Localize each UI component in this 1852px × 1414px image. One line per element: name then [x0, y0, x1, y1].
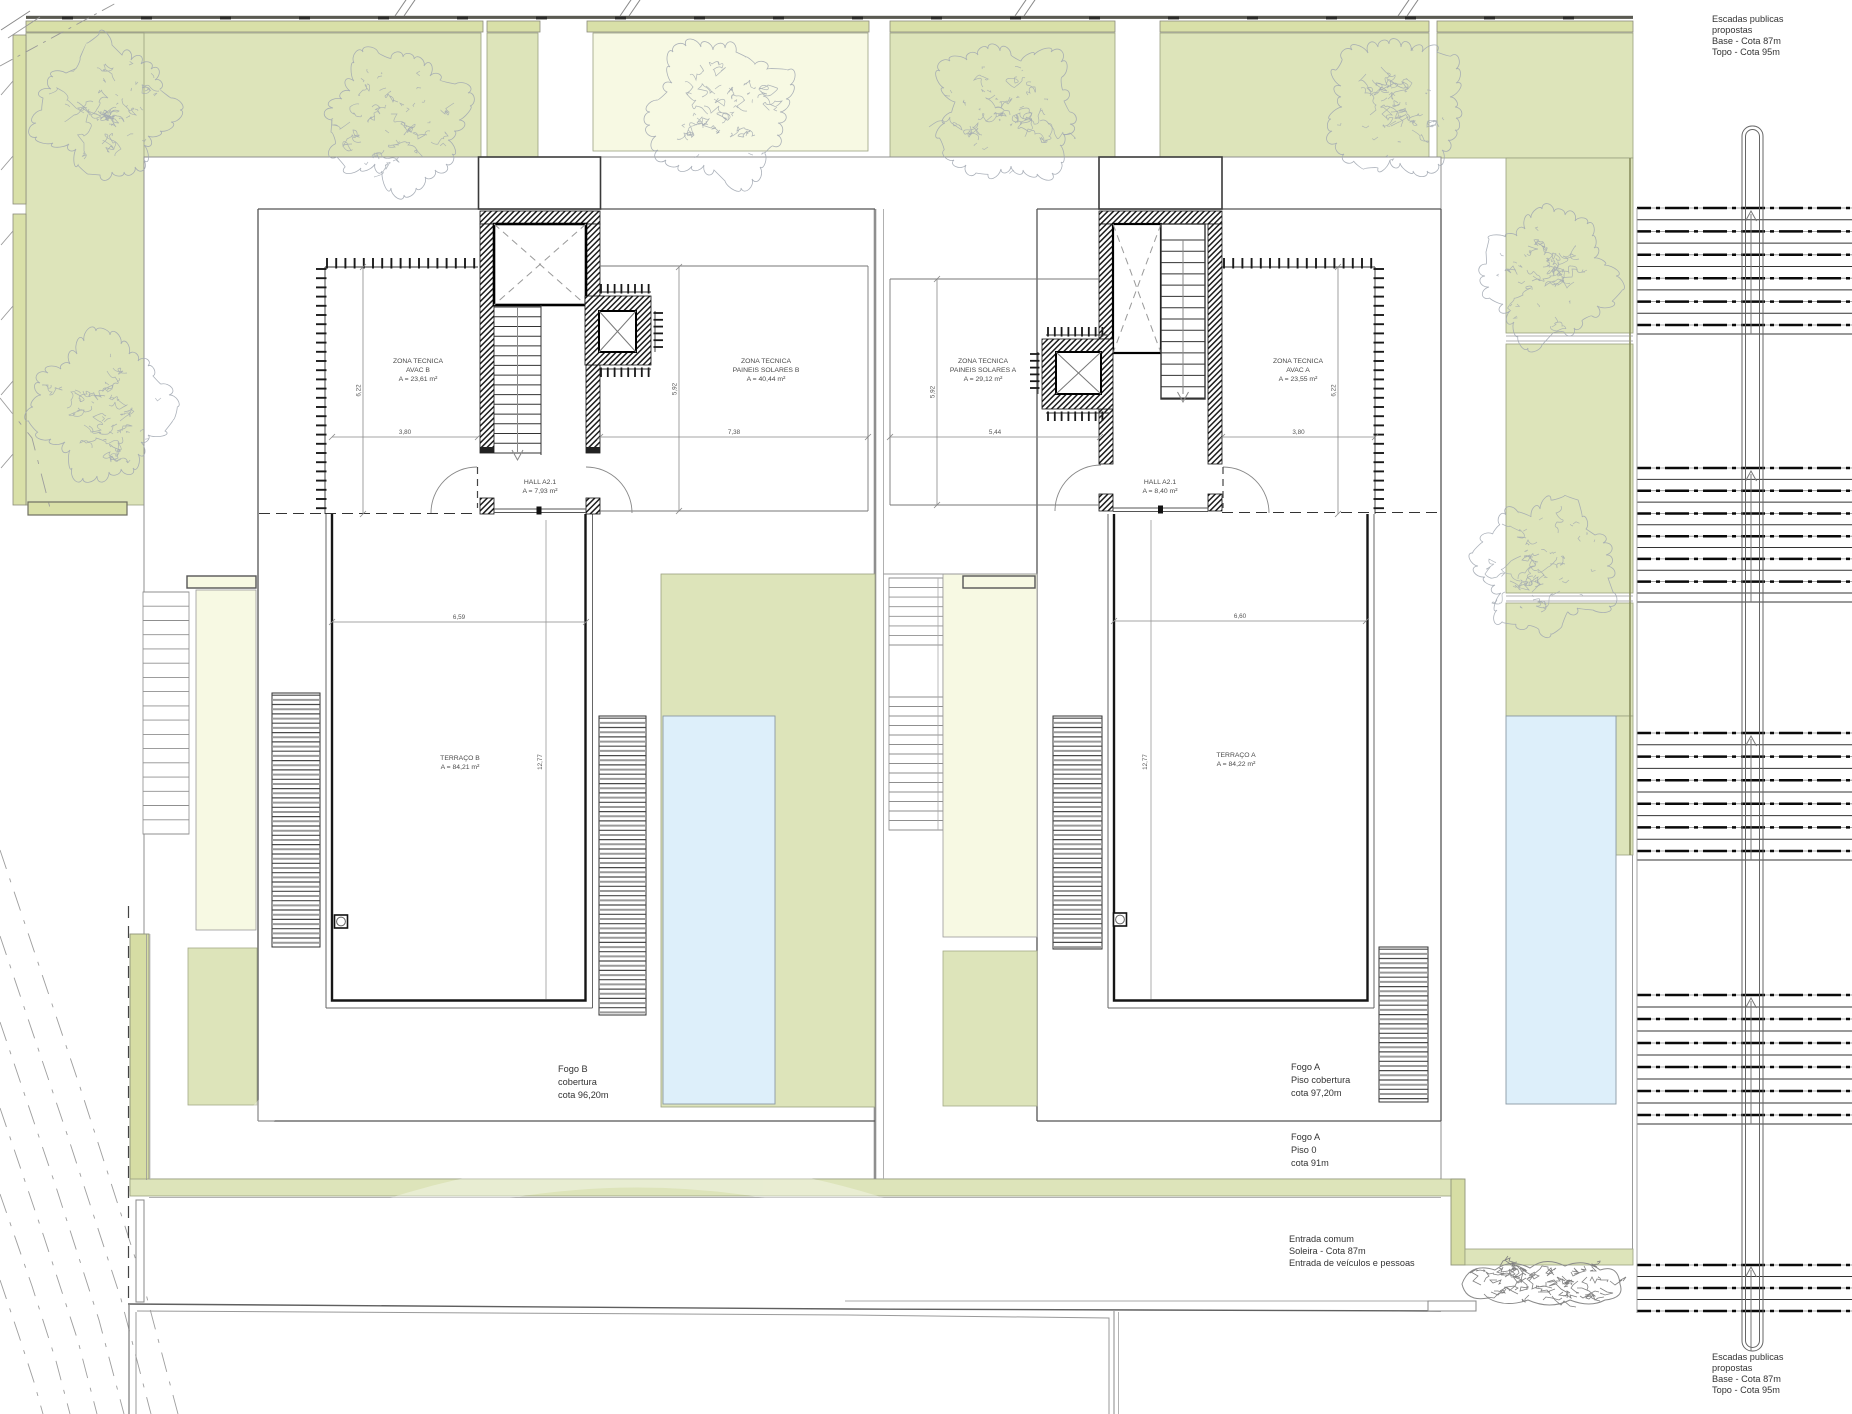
svg-text:6,60: 6,60	[1234, 613, 1247, 620]
svg-text:ZONA TECNICA: ZONA TECNICA	[393, 358, 444, 365]
svg-text:Escadas publicas: Escadas publicas	[1712, 14, 1784, 24]
svg-text:A = 29,12 m²: A = 29,12 m²	[964, 376, 1003, 383]
svg-text:Base - Cota 87m: Base - Cota 87m	[1712, 1374, 1781, 1384]
svg-text:HALL A2.1: HALL A2.1	[1144, 479, 1176, 486]
svg-text:propostas: propostas	[1712, 1363, 1753, 1373]
svg-text:A = 84,22 m²: A = 84,22 m²	[1217, 761, 1256, 768]
svg-text:Topo - Cota 95m: Topo - Cota 95m	[1712, 1385, 1780, 1395]
svg-text:6,22: 6,22	[1331, 384, 1338, 397]
svg-text:A = 23,61 m²: A = 23,61 m²	[399, 376, 438, 383]
svg-text:6,22: 6,22	[356, 384, 363, 397]
svg-text:Fogo B: Fogo B	[558, 1064, 588, 1074]
svg-text:7,38: 7,38	[728, 429, 741, 436]
svg-text:PAINEIS SOLARES A: PAINEIS SOLARES A	[950, 367, 1017, 374]
svg-text:A = 84,21 m²: A = 84,21 m²	[441, 764, 480, 771]
svg-text:A = 7,93 m²: A = 7,93 m²	[523, 488, 559, 495]
svg-text:Entrada de veículos e pessoas: Entrada de veículos e pessoas	[1289, 1258, 1415, 1268]
svg-text:cobertura: cobertura	[558, 1077, 598, 1087]
svg-text:6,59: 6,59	[453, 614, 466, 621]
svg-text:A = 23,55 m²: A = 23,55 m²	[1279, 376, 1318, 383]
svg-text:propostas: propostas	[1712, 25, 1753, 35]
svg-text:ZONA TECNICA: ZONA TECNICA	[958, 358, 1009, 365]
svg-text:Topo - Cota 95m: Topo - Cota 95m	[1712, 47, 1780, 57]
svg-text:Escadas publicas: Escadas publicas	[1712, 1352, 1784, 1362]
svg-text:Piso cobertura: Piso cobertura	[1291, 1075, 1351, 1085]
svg-text:12,77: 12,77	[1142, 754, 1149, 770]
svg-text:HALL A2.1: HALL A2.1	[524, 479, 556, 486]
svg-text:ZONA TECNICA: ZONA TECNICA	[1273, 358, 1324, 365]
svg-text:A = 8,40 m²: A = 8,40 m²	[1143, 488, 1179, 495]
svg-text:Entrada comum: Entrada comum	[1289, 1234, 1354, 1244]
svg-text:cota 96,20m: cota 96,20m	[558, 1090, 609, 1100]
svg-text:Fogo A: Fogo A	[1291, 1062, 1321, 1072]
svg-text:Piso 0: Piso 0	[1291, 1145, 1317, 1155]
svg-text:Soleira - Cota 87m: Soleira - Cota 87m	[1289, 1246, 1366, 1256]
svg-text:TERRAÇO B: TERRAÇO B	[440, 755, 480, 762]
svg-text:Fogo A: Fogo A	[1291, 1132, 1321, 1142]
svg-text:AVAC A: AVAC A	[1286, 367, 1310, 374]
svg-text:cota 91m: cota 91m	[1291, 1158, 1329, 1168]
svg-text:PAINEIS SOLARES B: PAINEIS SOLARES B	[733, 367, 800, 374]
svg-text:A = 40,44 m²: A = 40,44 m²	[747, 376, 786, 383]
svg-text:3,80: 3,80	[1292, 429, 1305, 436]
svg-text:5,44: 5,44	[989, 429, 1002, 436]
svg-text:cota 97,20m: cota 97,20m	[1291, 1088, 1342, 1098]
svg-text:3,80: 3,80	[399, 429, 412, 436]
svg-text:12,77: 12,77	[537, 754, 544, 770]
svg-text:TERRAÇO A: TERRAÇO A	[1216, 752, 1256, 759]
svg-text:Base - Cota 87m: Base - Cota 87m	[1712, 36, 1781, 46]
svg-text:AVAC B: AVAC B	[406, 367, 430, 374]
svg-text:5,92: 5,92	[672, 382, 679, 395]
svg-text:ZONA TECNICA: ZONA TECNICA	[741, 358, 792, 365]
svg-text:5,92: 5,92	[930, 385, 937, 398]
